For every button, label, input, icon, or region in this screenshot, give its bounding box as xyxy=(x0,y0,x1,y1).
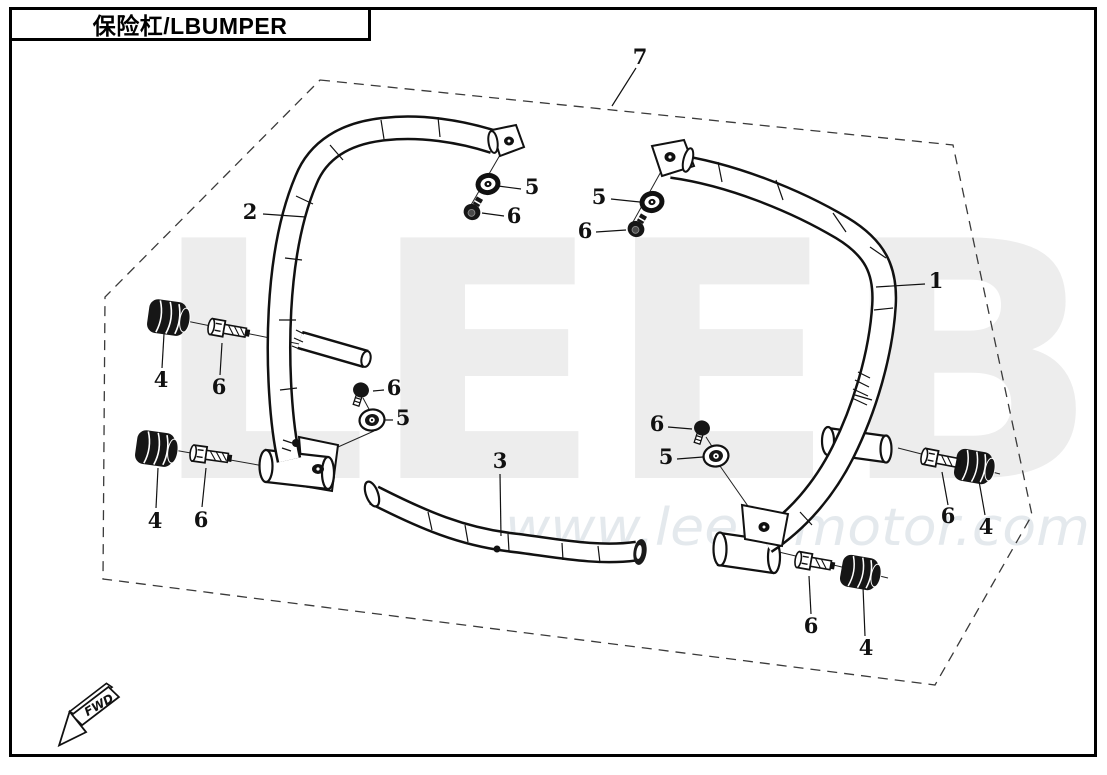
callout-part-4: 4 xyxy=(151,367,171,393)
callout-part-6: 6 xyxy=(938,503,958,529)
callout-part-5: 5 xyxy=(656,444,676,470)
callout-part-6: 6 xyxy=(209,374,229,400)
callout-part-4: 4 xyxy=(976,514,996,540)
callout-part-3: 3 xyxy=(490,448,510,474)
callout-part-2: 2 xyxy=(240,199,260,225)
callout-part-4: 4 xyxy=(856,635,876,661)
callout-part-5: 5 xyxy=(522,174,542,200)
callout-part-4: 4 xyxy=(145,508,165,534)
callout-part-6: 6 xyxy=(801,613,821,639)
callout-part-6: 6 xyxy=(647,411,667,437)
page-title: 保险杠/LBUMPER xyxy=(93,7,288,41)
callout-part-5: 5 xyxy=(589,184,609,210)
callout-part-1: 1 xyxy=(926,268,946,294)
callout-part-7: 7 xyxy=(630,44,650,70)
callout-part-5: 5 xyxy=(393,405,413,431)
parts-catalog-page: LEEB www.leeb-motor.com xyxy=(0,0,1107,775)
callout-part-6: 6 xyxy=(191,507,211,533)
callout-part-6: 6 xyxy=(384,375,404,401)
callout-part-6: 6 xyxy=(575,218,595,244)
title-box: 保险杠/LBUMPER xyxy=(9,7,371,41)
page-border xyxy=(9,7,1097,757)
callout-part-6: 6 xyxy=(504,203,524,229)
